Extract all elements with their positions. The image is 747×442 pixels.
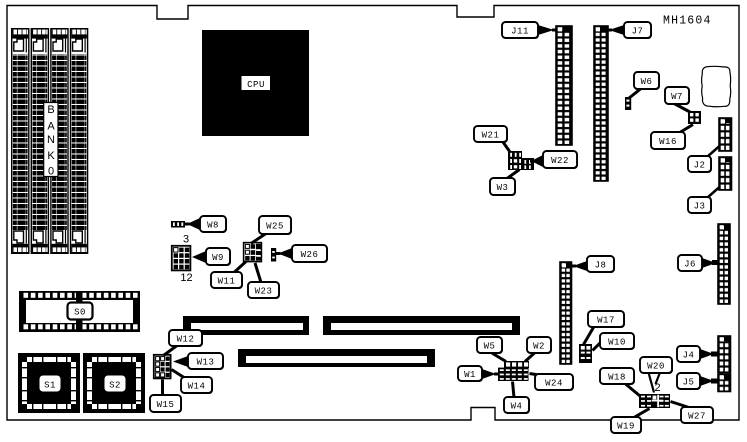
- svg-text:S2: S2: [109, 381, 121, 391]
- svg-text:W8: W8: [207, 221, 219, 231]
- svg-text:0: 0: [48, 166, 54, 178]
- svg-text:J11: J11: [511, 27, 529, 37]
- svg-text:W18: W18: [608, 373, 626, 383]
- svg-text:J2: J2: [694, 161, 706, 171]
- svg-text:N: N: [47, 134, 55, 146]
- svg-text:J4: J4: [683, 351, 695, 361]
- svg-text:W12: W12: [177, 335, 195, 345]
- svg-text:S1: S1: [44, 381, 56, 391]
- svg-text:12: 12: [180, 272, 192, 284]
- svg-text:W1: W1: [464, 370, 476, 380]
- svg-text:W19: W19: [617, 422, 635, 432]
- svg-text:K: K: [47, 150, 55, 162]
- svg-text:3: 3: [183, 234, 189, 246]
- svg-text:B: B: [47, 104, 54, 116]
- svg-text:W24: W24: [545, 379, 563, 389]
- svg-text:W7: W7: [671, 92, 683, 102]
- svg-text:W21: W21: [482, 131, 500, 141]
- svg-text:W15: W15: [157, 400, 175, 410]
- svg-text:W6: W6: [641, 77, 653, 87]
- svg-text:W9: W9: [212, 253, 224, 263]
- svg-text:W22: W22: [551, 156, 569, 166]
- svg-text:S0: S0: [74, 308, 86, 318]
- svg-text:J8: J8: [595, 261, 607, 271]
- svg-text:W11: W11: [218, 277, 236, 287]
- svg-text:MH1604: MH1604: [663, 15, 712, 28]
- svg-text:W10: W10: [608, 338, 626, 348]
- svg-text:W16: W16: [659, 137, 677, 147]
- svg-text:W5: W5: [484, 342, 496, 352]
- svg-text:J6: J6: [684, 260, 696, 270]
- svg-text:W13: W13: [197, 358, 215, 368]
- svg-text:W27: W27: [688, 412, 706, 422]
- svg-text:A: A: [47, 121, 55, 133]
- svg-text:W25: W25: [266, 222, 284, 232]
- svg-text:2: 2: [654, 382, 660, 394]
- svg-text:W23: W23: [255, 287, 273, 297]
- svg-text:W26: W26: [301, 250, 319, 260]
- svg-text:CPU: CPU: [247, 80, 265, 90]
- svg-text:J5: J5: [683, 378, 695, 388]
- svg-text:W4: W4: [511, 402, 523, 412]
- svg-text:W17: W17: [597, 316, 615, 326]
- svg-text:W20: W20: [647, 362, 665, 372]
- svg-text:W14: W14: [188, 382, 206, 392]
- svg-text:W2: W2: [533, 342, 545, 352]
- svg-text:J7: J7: [632, 27, 644, 37]
- svg-text:W3: W3: [497, 183, 509, 193]
- svg-text:J3: J3: [694, 202, 706, 212]
